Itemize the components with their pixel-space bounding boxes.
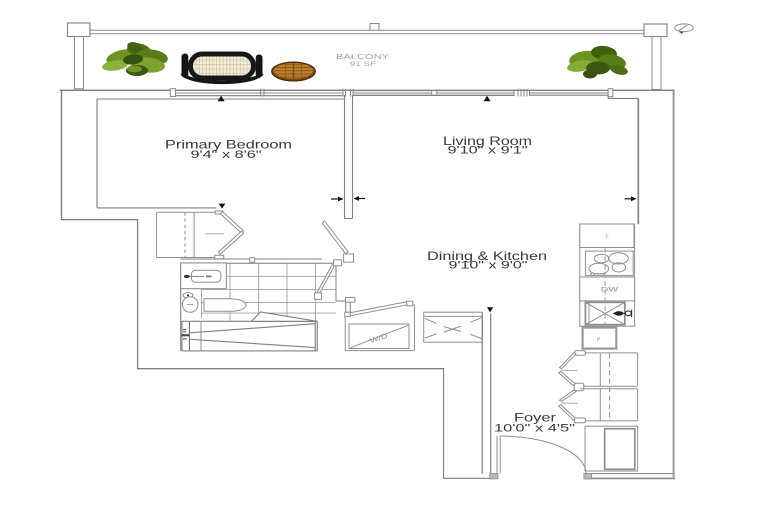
svg-text:P: P	[597, 337, 601, 343]
svg-text:9'10" x 9'1": 9'10" x 9'1"	[448, 145, 528, 157]
svg-text:91 SF: 91 SF	[350, 61, 376, 68]
svg-text:DW: DW	[601, 287, 620, 294]
svg-text:9'4" x 8'6": 9'4" x 8'6"	[191, 149, 262, 161]
svg-text:9'10" x 9'0": 9'10" x 9'0"	[449, 260, 528, 272]
svg-text:F: F	[605, 235, 608, 241]
svg-text:BALCONY: BALCONY	[336, 54, 390, 61]
svg-text:10'0" x 4'5": 10'0" x 4'5"	[494, 423, 575, 435]
